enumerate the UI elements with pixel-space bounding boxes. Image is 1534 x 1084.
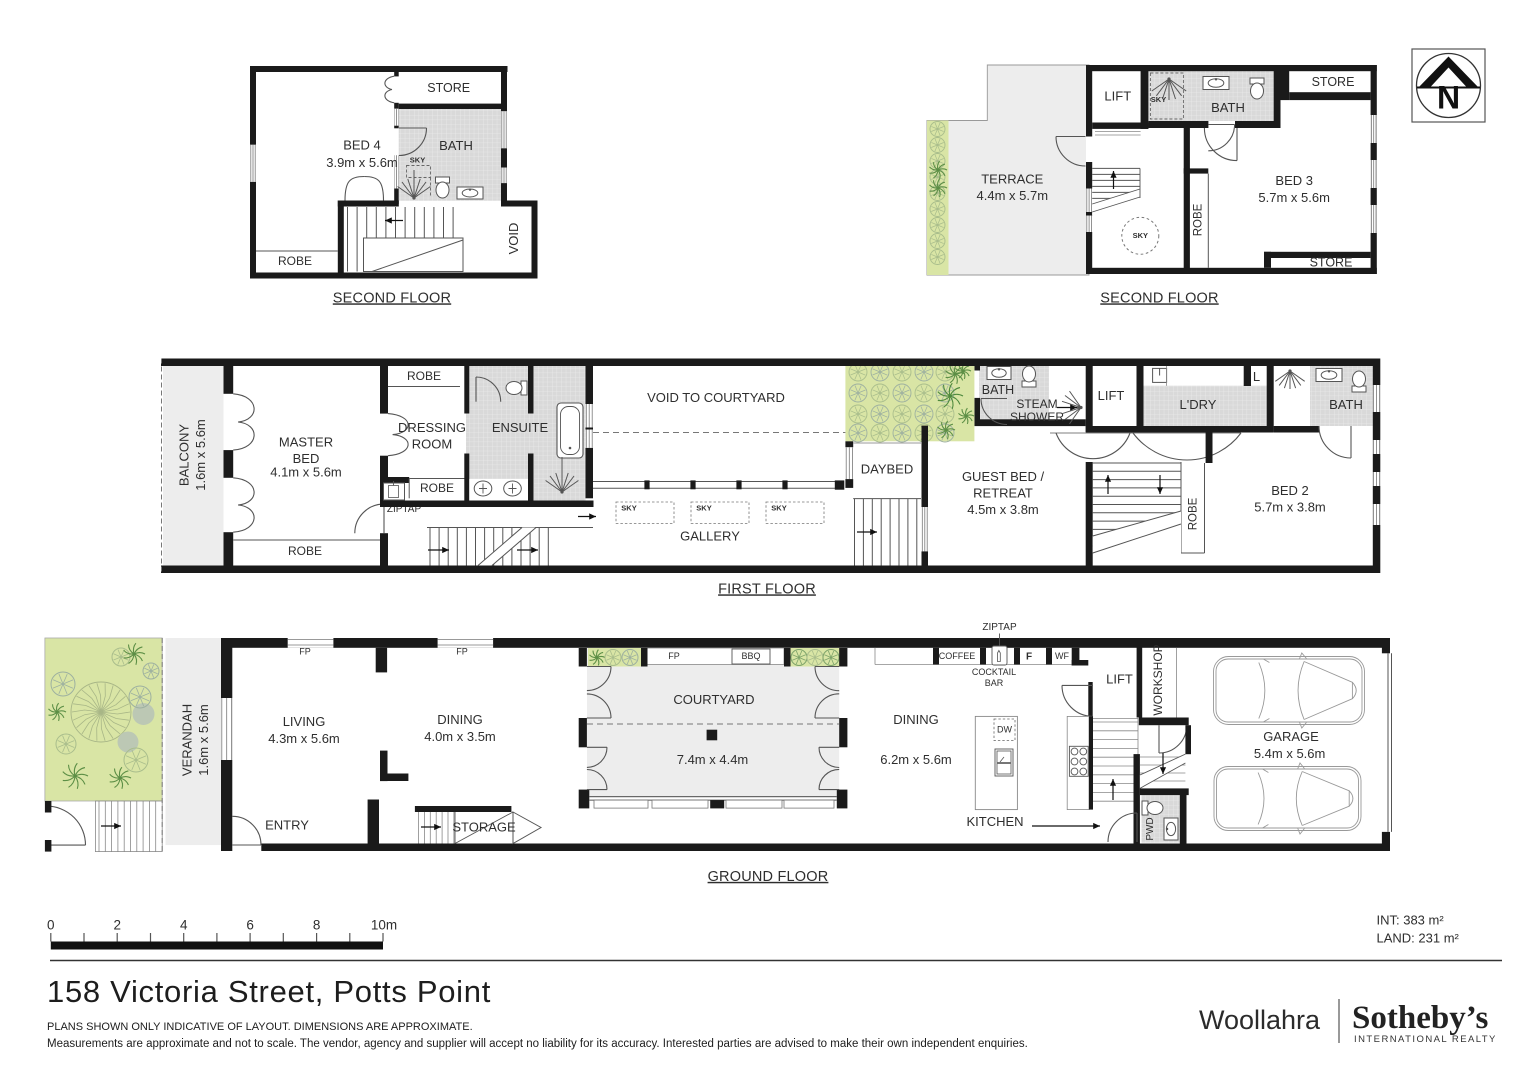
svg-text:N: N [1437, 79, 1460, 115]
svg-text:4.5m x 3.8m: 4.5m x 3.8m [967, 502, 1039, 517]
svg-text:RETREAT: RETREAT [973, 485, 1033, 500]
svg-text:158 Victoria Street, Potts Poi: 158 Victoria Street, Potts Point [47, 974, 491, 1009]
svg-text:GUEST BED /: GUEST BED / [962, 469, 1045, 484]
svg-text:SECOND FLOOR: SECOND FLOOR [1100, 290, 1218, 306]
svg-text:BED 4: BED 4 [343, 137, 381, 152]
svg-text:5.7m x 3.8m: 5.7m x 3.8m [1254, 499, 1326, 514]
svg-text:DINING: DINING [893, 712, 939, 727]
svg-text:GALLERY: GALLERY [680, 528, 740, 543]
svg-text:STEAM: STEAM [1016, 397, 1057, 411]
svg-text:Sotheby’s: Sotheby’s [1352, 1000, 1488, 1036]
svg-text:5.7m x 5.6m: 5.7m x 5.6m [1258, 190, 1330, 205]
svg-text:PWD: PWD [1145, 817, 1156, 840]
svg-text:0: 0 [47, 918, 55, 933]
svg-text:10m: 10m [371, 918, 397, 933]
svg-text:VOID: VOID [506, 223, 521, 255]
svg-text:BATH: BATH [439, 138, 473, 153]
svg-text:SKY: SKY [696, 503, 711, 512]
svg-text:ROBE: ROBE [1193, 203, 1205, 236]
svg-text:ZIPTAP: ZIPTAP [982, 622, 1017, 633]
svg-text:SKY: SKY [410, 155, 425, 164]
svg-text:SKY: SKY [621, 503, 636, 512]
svg-text:GARAGE: GARAGE [1263, 729, 1319, 744]
svg-text:STORE: STORE [1310, 255, 1353, 269]
svg-text:FP: FP [668, 651, 680, 661]
svg-text:1.6m x 5.6m: 1.6m x 5.6m [196, 704, 211, 776]
svg-text:COCKTAIL: COCKTAIL [972, 667, 1016, 677]
svg-text:VERANDAH: VERANDAH [179, 704, 194, 776]
svg-text:L: L [1253, 369, 1260, 384]
svg-text:5.4m x 5.6m: 5.4m x 5.6m [1254, 746, 1326, 761]
svg-text:COFFEE: COFFEE [939, 651, 976, 661]
svg-text:L'DRY: L'DRY [1180, 397, 1217, 412]
svg-text:SKY: SKY [1151, 95, 1166, 104]
svg-text:BATH: BATH [982, 383, 1014, 397]
svg-text:BATH: BATH [1211, 100, 1245, 115]
svg-text:WORKSHOP: WORKSHOP [1151, 644, 1165, 715]
svg-text:Woollahra: Woollahra [1199, 1005, 1321, 1035]
svg-text:TERRACE: TERRACE [981, 171, 1043, 186]
svg-text:ROBE: ROBE [407, 369, 441, 383]
svg-text:6.2m x 5.6m: 6.2m x 5.6m [880, 752, 952, 767]
svg-text:LAND: 231 m²: LAND: 231 m² [1377, 930, 1460, 945]
svg-text:LIFT: LIFT [1104, 88, 1131, 103]
svg-text:SKY: SKY [1133, 231, 1148, 240]
svg-text:4.0m x 3.5m: 4.0m x 3.5m [424, 729, 496, 744]
svg-text:4.4m x 5.7m: 4.4m x 5.7m [977, 188, 1049, 203]
svg-text:COURTYARD: COURTYARD [673, 692, 754, 707]
svg-text:ROBE: ROBE [420, 481, 454, 495]
svg-text:ENTRY: ENTRY [265, 817, 309, 832]
svg-text:DW: DW [997, 724, 1012, 734]
svg-text:8: 8 [313, 918, 321, 933]
svg-text:PLANS SHOWN ONLY INDICATIVE OF: PLANS SHOWN ONLY INDICATIVE OF LAYOUT. D… [47, 1021, 473, 1033]
svg-text:BED 2: BED 2 [1271, 483, 1309, 498]
svg-text:WF: WF [1055, 651, 1069, 661]
svg-text:DAYBED: DAYBED [861, 461, 914, 476]
svg-text:1.6m x 5.6m: 1.6m x 5.6m [193, 419, 208, 491]
svg-text:GROUND FLOOR: GROUND FLOOR [708, 869, 829, 885]
svg-text:ROOM: ROOM [412, 436, 452, 451]
svg-text:KITCHEN: KITCHEN [966, 814, 1023, 829]
svg-text:DRESSING: DRESSING [398, 420, 466, 435]
svg-text:F: F [1026, 652, 1032, 663]
svg-text:BED 3: BED 3 [1275, 173, 1313, 188]
svg-text:INT: 383 m²: INT: 383 m² [1377, 912, 1445, 927]
svg-text:6: 6 [246, 918, 254, 933]
svg-text:LIFT: LIFT [1106, 671, 1133, 686]
svg-text:INTERNATIONAL REALTY: INTERNATIONAL REALTY [1354, 1034, 1497, 1045]
svg-text:ENSUITE: ENSUITE [492, 420, 549, 435]
svg-text:VOID TO COURTYARD: VOID TO COURTYARD [647, 390, 785, 405]
svg-text:STORE: STORE [1312, 75, 1355, 89]
svg-text:LIVING: LIVING [283, 714, 326, 729]
svg-text:Measurements are approximate a: Measurements are approximate and not to … [47, 1038, 1028, 1050]
svg-text:7.4m x 4.4m: 7.4m x 4.4m [677, 752, 749, 767]
svg-text:4.1m x 5.6m: 4.1m x 5.6m [270, 464, 342, 479]
svg-text:ROBE: ROBE [288, 544, 322, 558]
svg-text:BALCONY: BALCONY [176, 424, 191, 486]
svg-text:SHOWER: SHOWER [1010, 410, 1064, 424]
svg-text:LIFT: LIFT [1098, 388, 1125, 403]
svg-text:BAR: BAR [985, 678, 1004, 688]
svg-text:SKY: SKY [771, 503, 786, 512]
svg-text:FP: FP [456, 646, 468, 656]
svg-text:STORE: STORE [427, 81, 470, 95]
svg-text:3.9m x 5.6m: 3.9m x 5.6m [326, 155, 398, 170]
svg-text:SECOND FLOOR: SECOND FLOOR [333, 290, 451, 306]
svg-text:MASTER: MASTER [279, 434, 333, 449]
svg-text:BBQ: BBQ [741, 651, 760, 661]
svg-text:FIRST FLOOR: FIRST FLOOR [718, 581, 816, 597]
svg-text:4.3m x 5.6m: 4.3m x 5.6m [268, 731, 340, 746]
svg-text:4: 4 [180, 918, 188, 933]
svg-text:BATH: BATH [1329, 397, 1363, 412]
svg-text:FP: FP [299, 646, 311, 656]
svg-text:ROBE: ROBE [1188, 497, 1200, 530]
svg-text:ROBE: ROBE [278, 254, 312, 268]
svg-text:DINING: DINING [437, 712, 483, 727]
svg-text:2: 2 [113, 918, 121, 933]
svg-text:STORAGE: STORAGE [452, 819, 516, 834]
